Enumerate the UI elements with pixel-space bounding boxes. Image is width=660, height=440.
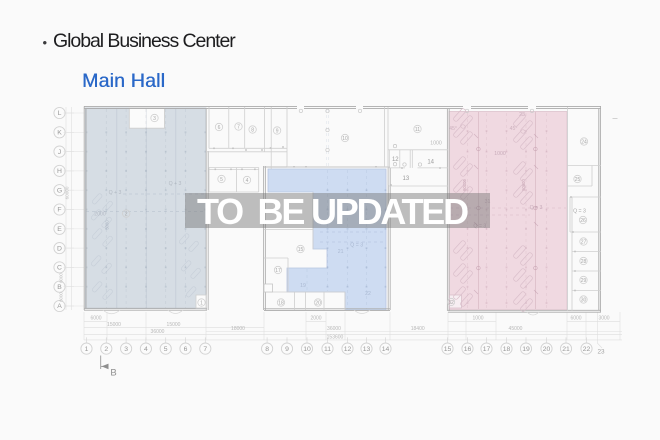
svg-text:27: 27 xyxy=(581,239,587,245)
svg-text:L: L xyxy=(58,110,62,117)
svg-text:15000: 15000 xyxy=(107,322,121,328)
svg-text:6: 6 xyxy=(184,346,188,353)
svg-text:11: 11 xyxy=(324,346,331,353)
svg-text:C: C xyxy=(57,265,62,272)
svg-text:8: 8 xyxy=(265,346,269,353)
svg-text:E: E xyxy=(57,226,62,233)
svg-text:Q = 3: Q = 3 xyxy=(530,205,543,211)
svg-text:Q = 3: Q = 3 xyxy=(350,243,363,249)
svg-text:29: 29 xyxy=(581,278,587,284)
svg-text:6: 6 xyxy=(218,125,221,131)
svg-text:23: 23 xyxy=(597,349,605,356)
svg-text:15: 15 xyxy=(444,346,452,353)
svg-text:22: 22 xyxy=(365,291,371,297)
svg-text:32: 32 xyxy=(448,300,454,306)
svg-text:Q + 3: Q + 3 xyxy=(109,190,122,196)
svg-text:J: J xyxy=(58,149,61,156)
svg-text:22: 22 xyxy=(583,346,591,353)
svg-text:17: 17 xyxy=(483,346,491,353)
svg-text:10: 10 xyxy=(303,346,311,353)
svg-text:8: 8 xyxy=(251,127,254,133)
svg-text:15: 15 xyxy=(298,247,304,253)
svg-text:5: 5 xyxy=(164,346,168,353)
svg-text:12: 12 xyxy=(392,157,399,163)
svg-text:1: 1 xyxy=(200,300,203,306)
svg-text:5: 5 xyxy=(220,177,223,183)
svg-text:13: 13 xyxy=(403,176,410,182)
svg-text:Q + 3: Q + 3 xyxy=(169,181,182,187)
svg-text:23: 23 xyxy=(519,112,525,118)
svg-text:15000: 15000 xyxy=(167,322,181,328)
svg-text:6000: 6000 xyxy=(570,316,581,322)
svg-text:B: B xyxy=(57,284,62,291)
svg-text:18000: 18000 xyxy=(231,326,245,332)
svg-text:24: 24 xyxy=(581,139,587,145)
svg-text:45°: 45° xyxy=(510,126,518,132)
svg-text:21: 21 xyxy=(562,346,570,353)
svg-text:4: 4 xyxy=(246,178,249,184)
svg-text:7: 7 xyxy=(237,124,240,130)
svg-text:45000: 45000 xyxy=(509,326,523,332)
svg-text:2000: 2000 xyxy=(310,316,321,322)
svg-text:10: 10 xyxy=(342,136,348,142)
svg-text:2: 2 xyxy=(104,346,108,353)
svg-text:18400: 18400 xyxy=(411,326,425,332)
svg-text:20: 20 xyxy=(543,346,551,353)
svg-text:A: A xyxy=(57,303,62,310)
svg-text:9: 9 xyxy=(285,346,289,353)
svg-text:60000: 60000 xyxy=(65,186,70,199)
svg-text:D: D xyxy=(57,245,62,252)
svg-text:Q = 3: Q = 3 xyxy=(573,209,586,215)
svg-text:3000: 3000 xyxy=(598,316,609,322)
svg-text:18: 18 xyxy=(503,346,511,353)
svg-text:9: 9 xyxy=(276,128,279,134)
svg-text:3: 3 xyxy=(124,346,128,353)
svg-text:14: 14 xyxy=(427,160,434,166)
svg-text:26: 26 xyxy=(580,218,586,224)
svg-text:F: F xyxy=(57,207,61,214)
svg-text:6000: 6000 xyxy=(59,273,64,283)
svg-text:19: 19 xyxy=(522,346,530,353)
svg-text:7: 7 xyxy=(203,346,207,353)
svg-text:36000: 36000 xyxy=(151,329,165,335)
svg-text:25: 25 xyxy=(575,177,581,183)
svg-text:1: 1 xyxy=(85,346,89,353)
svg-text:6000: 6000 xyxy=(59,292,64,302)
svg-text:H: H xyxy=(57,168,62,175)
svg-text:11: 11 xyxy=(415,127,420,133)
svg-text:B: B xyxy=(110,368,116,379)
svg-text:21: 21 xyxy=(338,249,344,255)
svg-text:1000: 1000 xyxy=(430,141,442,147)
svg-text:45°: 45° xyxy=(449,126,457,132)
svg-text:1000: 1000 xyxy=(472,316,483,322)
svg-text:17: 17 xyxy=(275,268,281,274)
svg-text:4: 4 xyxy=(144,346,148,353)
svg-text:28: 28 xyxy=(581,259,587,265)
svg-text:14: 14 xyxy=(382,346,390,353)
svg-text:1000: 1000 xyxy=(494,151,506,157)
svg-text:30: 30 xyxy=(581,297,587,303)
svg-text:18: 18 xyxy=(278,300,284,306)
svg-text:12: 12 xyxy=(344,346,352,353)
svg-text:3: 3 xyxy=(153,116,156,122)
svg-text:K: K xyxy=(57,130,62,137)
svg-text:G: G xyxy=(57,187,62,194)
svg-text:16: 16 xyxy=(464,346,472,353)
svg-text:2: 2 xyxy=(125,212,128,218)
svg-text:36000: 36000 xyxy=(327,326,341,332)
svg-text:19: 19 xyxy=(300,283,306,289)
svg-text:6000: 6000 xyxy=(90,316,101,322)
svg-text:153600: 153600 xyxy=(327,334,344,340)
svg-text:13: 13 xyxy=(363,346,371,353)
svg-text:20: 20 xyxy=(315,300,321,306)
